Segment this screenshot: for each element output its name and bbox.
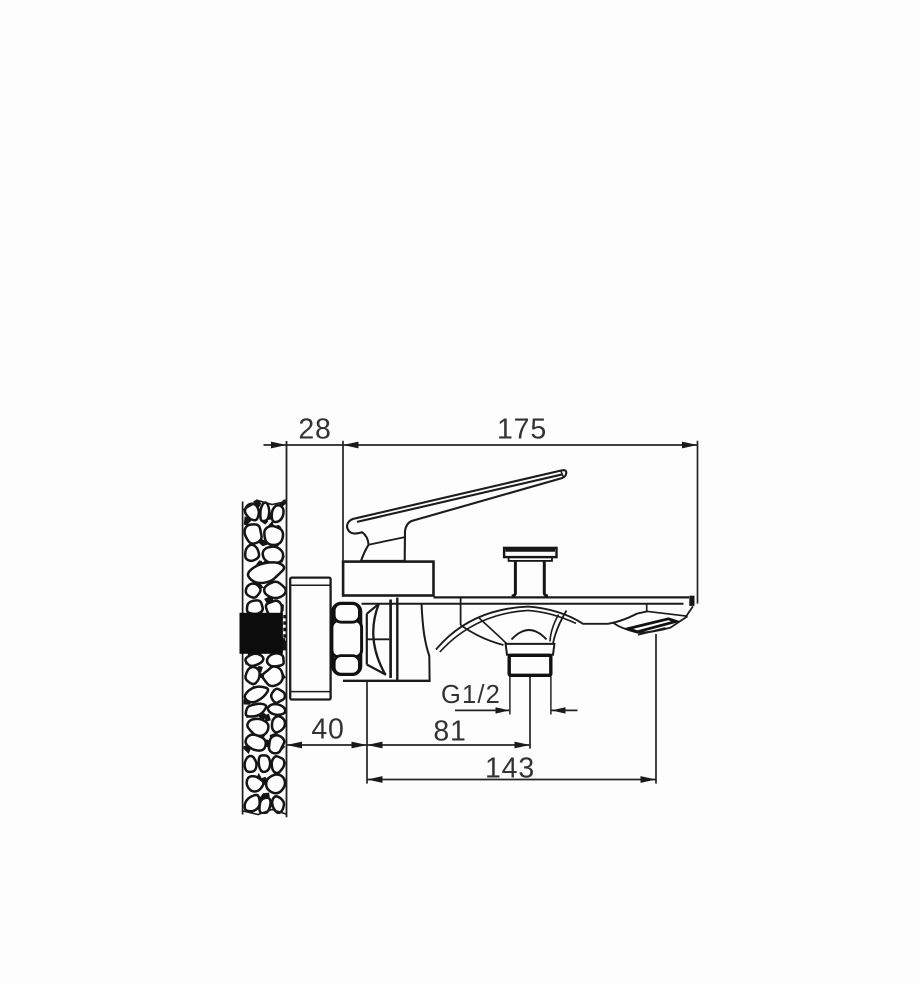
svg-text:28: 28 [298,414,331,446]
svg-text:81: 81 [433,716,466,748]
svg-text:G1/2: G1/2 [441,681,501,709]
svg-text:40: 40 [311,714,344,746]
svg-text:175: 175 [497,414,547,446]
svg-text:143: 143 [485,752,535,784]
